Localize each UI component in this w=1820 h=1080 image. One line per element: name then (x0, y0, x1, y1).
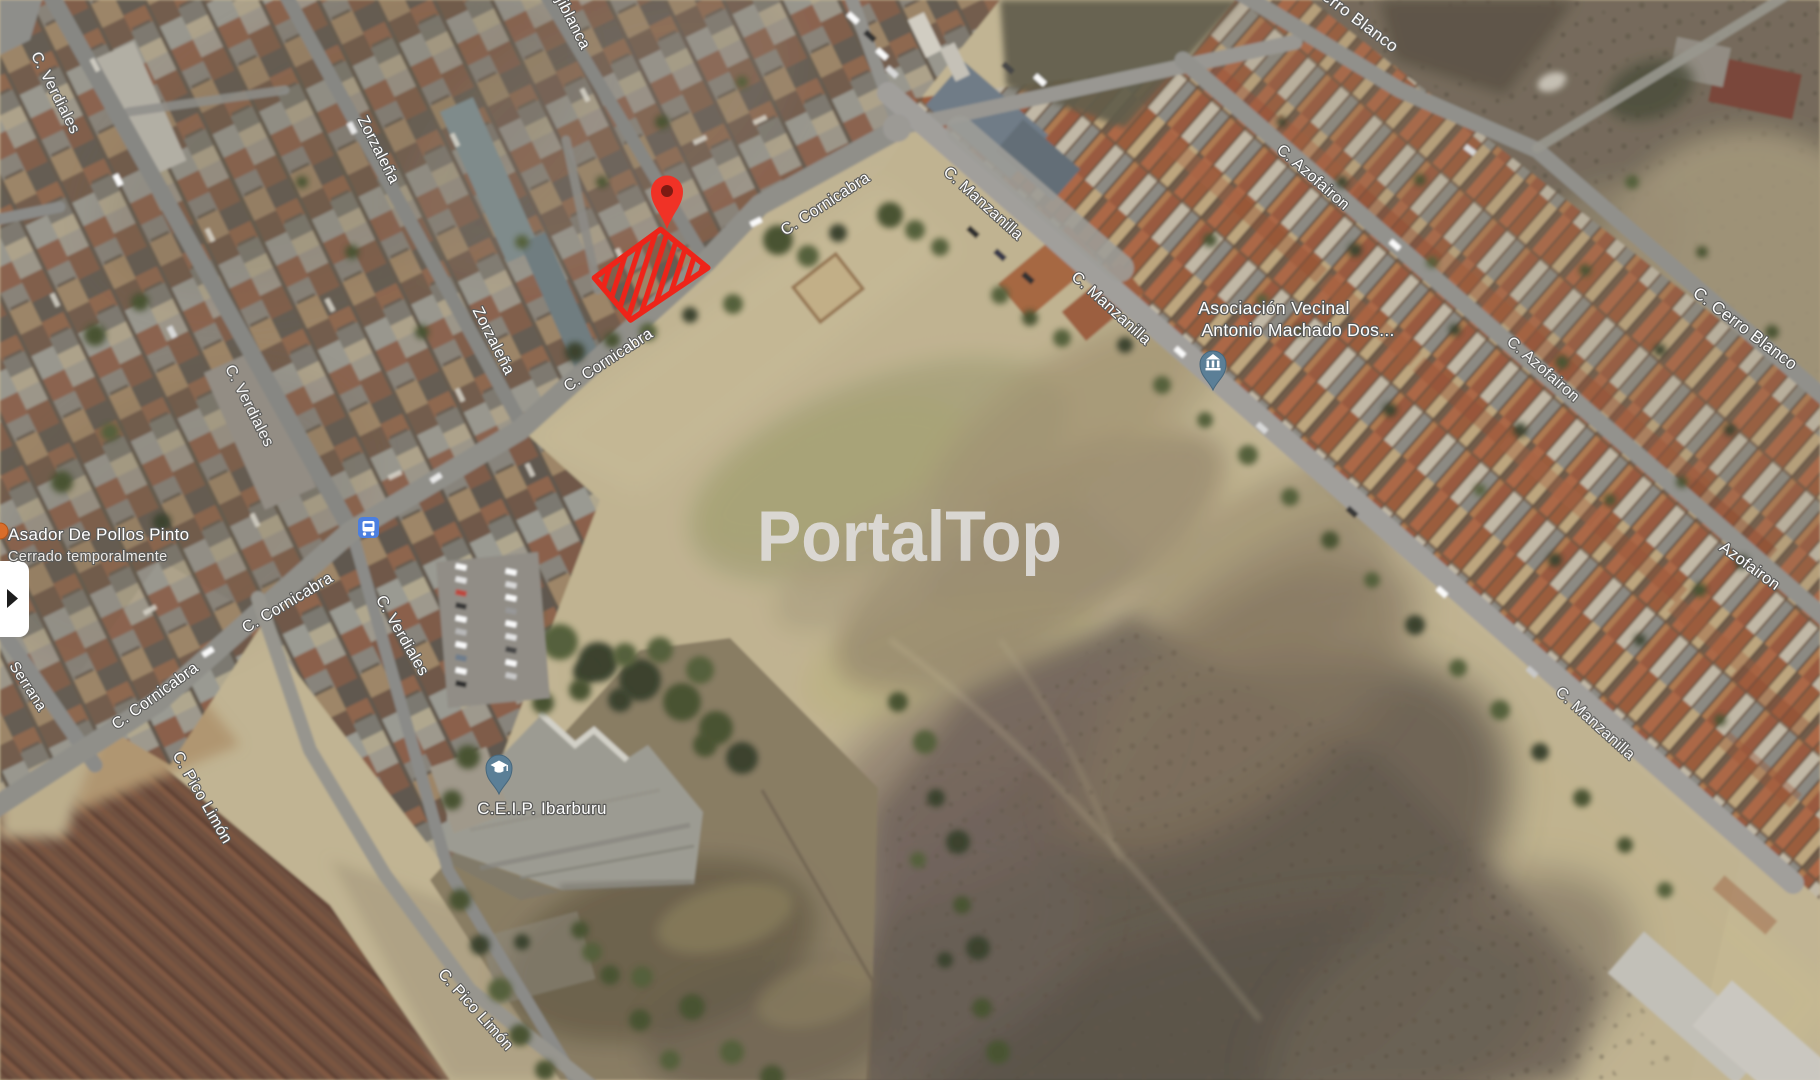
svg-text:Asociación Vecinal: Asociación Vecinal (1198, 298, 1349, 318)
svg-text:Asador De Pollos Pinto: Asador De Pollos Pinto (8, 525, 189, 544)
svg-text:PortalTop: PortalTop (757, 498, 1062, 577)
svg-text:Antonio Machado Dos...: Antonio Machado Dos... (1201, 320, 1394, 340)
svg-text:C.E.I.P. Ibarburu: C.E.I.P. Ibarburu (477, 799, 607, 818)
svg-text:Cerrado temporalmente: Cerrado temporalmente (8, 549, 167, 565)
